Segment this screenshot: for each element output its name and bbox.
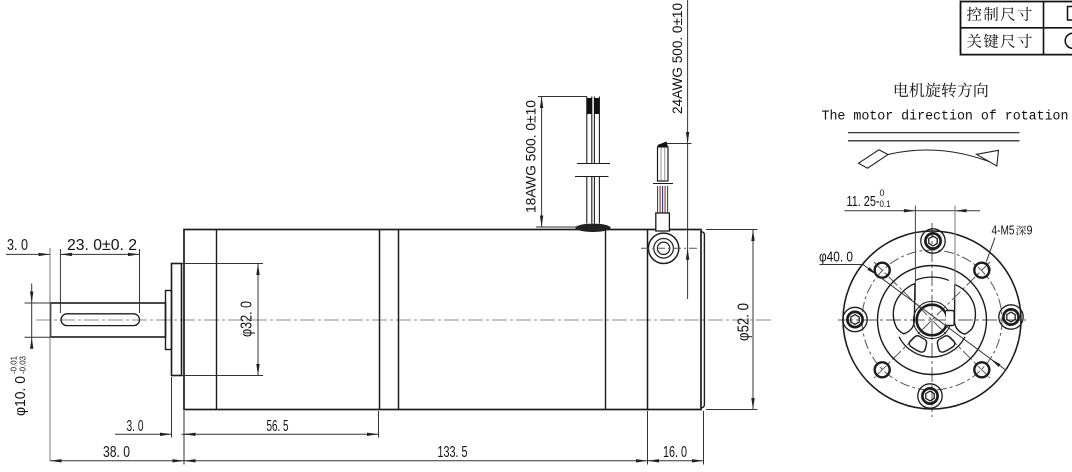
svg-text:-0.01: -0.01 <box>10 355 19 374</box>
svg-text:18AWG 500. 0±10: 18AWG 500. 0±10 <box>523 100 539 213</box>
svg-text:9: 9 <box>1027 224 1033 238</box>
svg-text:The motor direction of rotatio: The motor direction of rotation <box>822 109 1069 125</box>
svg-text:11. 25-: 11. 25- <box>847 194 880 210</box>
svg-text:56. 5: 56. 5 <box>267 418 289 435</box>
svg-text:φ40. 0: φ40. 0 <box>819 249 853 266</box>
svg-text:0.1: 0.1 <box>880 199 891 209</box>
svg-text:24AWG 500. 0±10: 24AWG 500. 0±10 <box>669 3 685 114</box>
svg-text:3. 0: 3. 0 <box>7 237 28 254</box>
svg-text:4-M5: 4-M5 <box>992 224 1015 238</box>
svg-text:φ32. 0: φ32. 0 <box>239 301 256 337</box>
svg-text:3. 0: 3. 0 <box>127 418 144 435</box>
svg-text:0: 0 <box>880 188 885 198</box>
svg-text:133. 5: 133. 5 <box>438 444 468 461</box>
svg-text:38. 0: 38. 0 <box>103 444 130 461</box>
svg-text:φ10. 0: φ10. 0 <box>12 376 29 416</box>
svg-text:-0.03: -0.03 <box>19 355 28 374</box>
svg-text:16. 0: 16. 0 <box>663 444 687 461</box>
svg-text:23. 0±0. 2: 23. 0±0. 2 <box>67 237 137 254</box>
svg-text:φ52. 0: φ52. 0 <box>736 303 753 341</box>
